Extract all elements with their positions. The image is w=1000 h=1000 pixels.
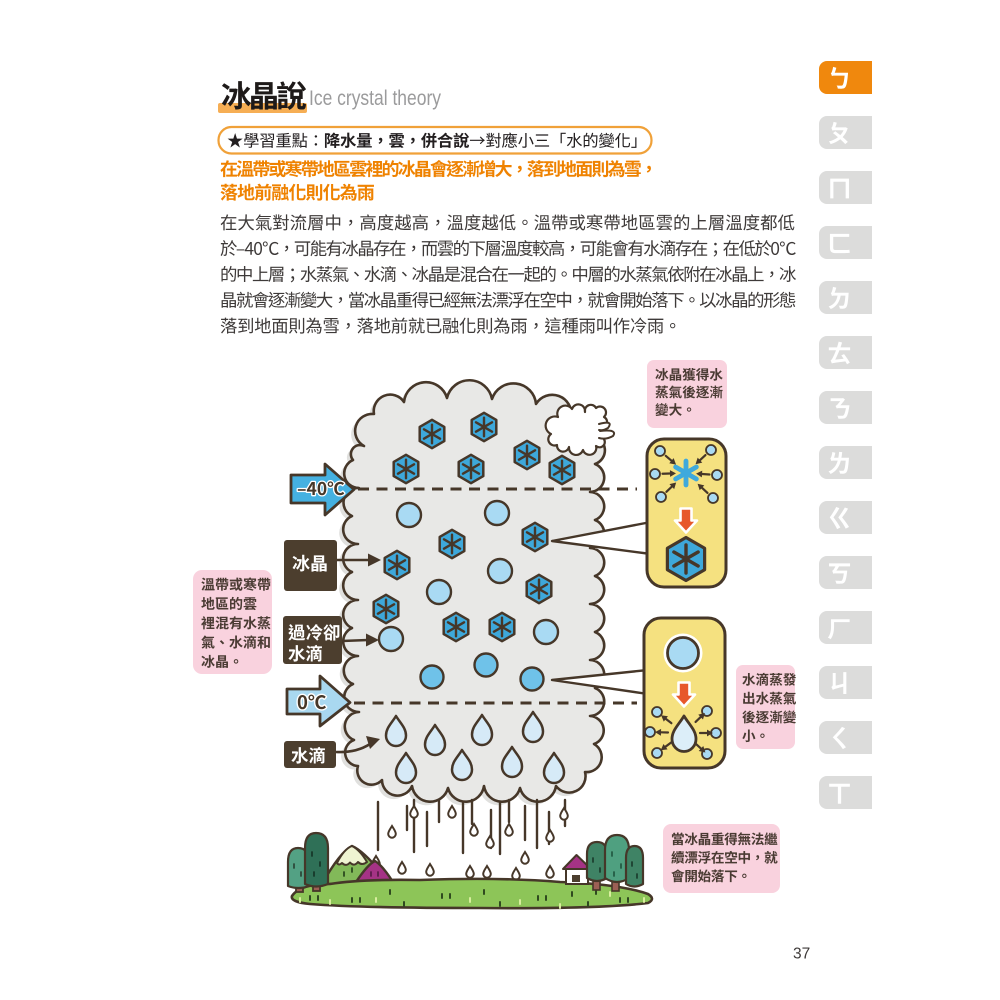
svg-text:37: 37	[793, 946, 810, 963]
svg-text:Ice crystal theory: Ice crystal theory	[309, 86, 441, 110]
